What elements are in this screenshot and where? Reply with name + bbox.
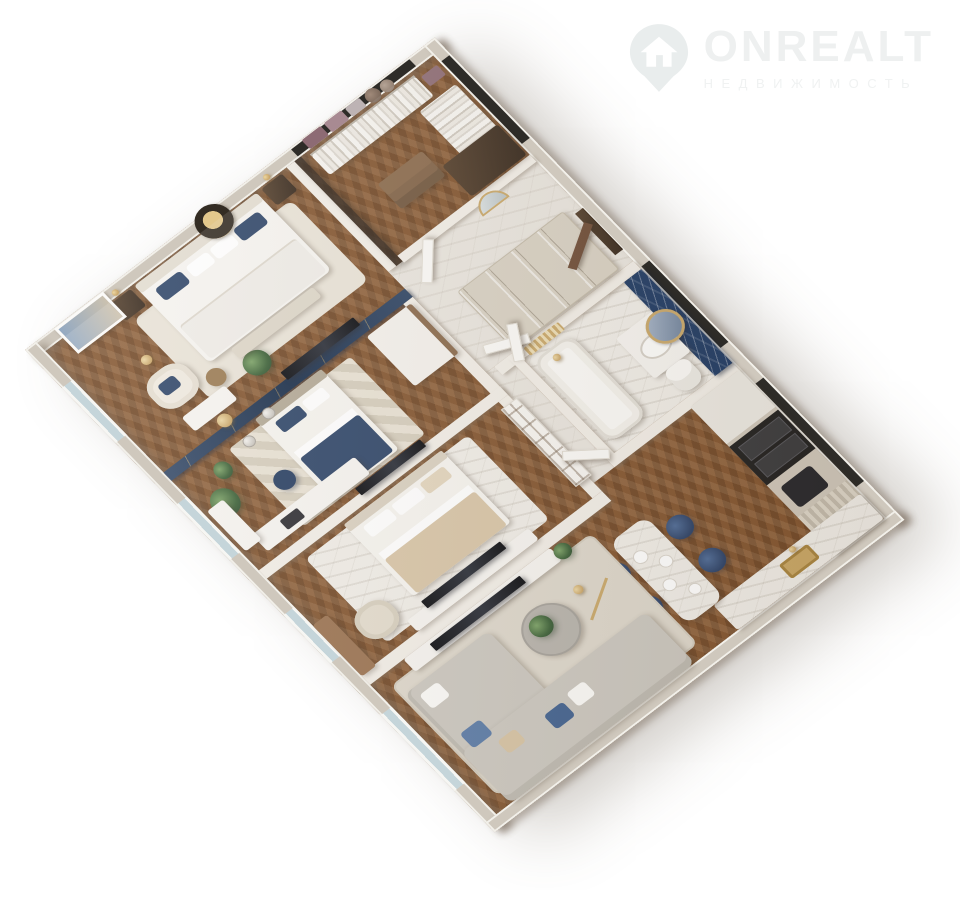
onrealt-logo: ONREALT НЕДВИЖИМОСТЬ <box>628 22 934 94</box>
floor-plan <box>25 37 904 832</box>
door-leaf <box>421 239 434 283</box>
logo-text: ONREALT НЕДВИЖИМОСТЬ <box>704 25 934 91</box>
house-location-pin-icon <box>628 22 690 94</box>
brand-name: ONREALT <box>704 25 934 69</box>
brand-tagline: НЕДВИЖИМОСТЬ <box>704 76 934 91</box>
